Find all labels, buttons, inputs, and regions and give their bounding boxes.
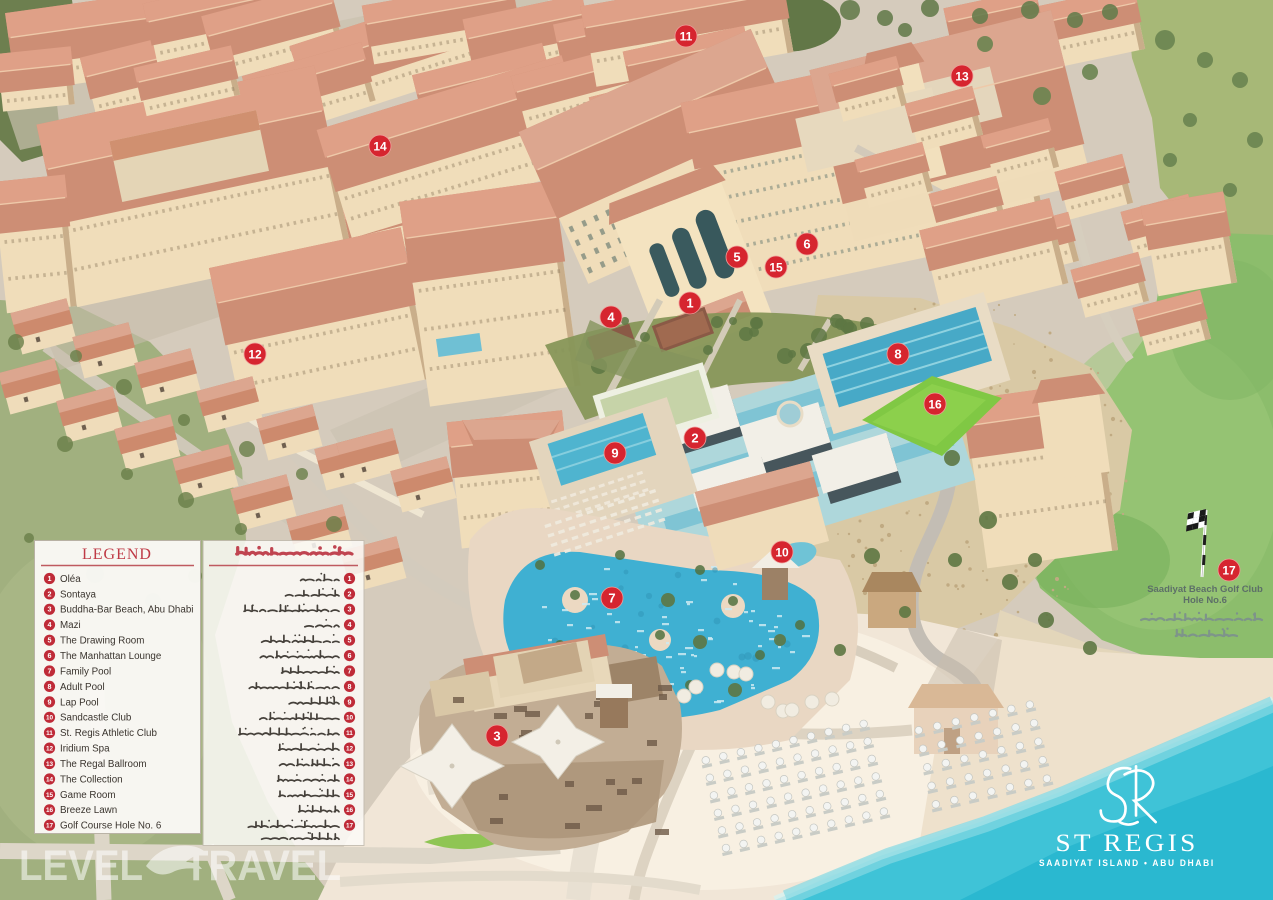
svg-text:11: 11 [46,730,53,737]
svg-text:5: 5 [733,250,740,265]
svg-text:The Collection: The Collection [60,774,123,785]
svg-text:14: 14 [346,776,354,783]
svg-text:7: 7 [48,666,52,675]
svg-text:4: 4 [48,620,52,629]
svg-text:Buddha-Bar Beach, Abu Dhabi: Buddha-Bar Beach, Abu Dhabi [60,605,193,616]
svg-text:2: 2 [691,431,698,446]
svg-text:St. Regis Athletic Club: St. Regis Athletic Club [60,728,157,739]
svg-text:2: 2 [48,589,52,598]
svg-text:1: 1 [48,574,52,583]
svg-text:8: 8 [894,347,901,362]
svg-text:17: 17 [1222,564,1236,578]
svg-text:ST REGIS: ST REGIS [1056,830,1199,857]
svg-text:Adult Pool: Adult Pool [60,682,105,693]
svg-text:8: 8 [348,682,352,691]
svg-text:5: 5 [348,636,352,645]
svg-text:8: 8 [48,682,52,691]
svg-text:13: 13 [955,70,969,84]
svg-text:TRAVEL: TRAVEL [184,842,341,890]
svg-text:11: 11 [680,30,693,44]
svg-text:Sontaya: Sontaya [60,589,97,600]
svg-text:9: 9 [611,446,618,461]
svg-text:9: 9 [48,697,52,706]
svg-text:16: 16 [346,807,354,814]
svg-text:9: 9 [348,697,352,706]
svg-text:Sandcastle Club: Sandcastle Club [60,713,132,724]
svg-text:Saadiyat Beach Golf Club: Saadiyat Beach Golf Club [1147,584,1263,595]
svg-text:16: 16 [46,807,54,814]
svg-text:Breeze Lawn: Breeze Lawn [60,805,117,816]
svg-text:Mazi: Mazi [60,620,81,631]
svg-text:SAADIYAT ISLAND • ABU DHABI: SAADIYAT ISLAND • ABU DHABI [1039,858,1215,869]
svg-text:10: 10 [346,715,354,722]
svg-text:The Manhattan Lounge: The Manhattan Lounge [60,651,162,662]
svg-text:Oléa: Oléa [60,574,81,585]
svg-text:3: 3 [48,605,52,614]
svg-text:15: 15 [769,261,783,275]
svg-text:LEGEND: LEGEND [82,546,152,563]
svg-text:15: 15 [346,792,354,799]
svg-text:3: 3 [348,605,352,614]
svg-text:17: 17 [346,823,354,830]
svg-text:17: 17 [46,823,54,830]
svg-text:13: 13 [46,761,54,768]
svg-text:The Regal Ballroom: The Regal Ballroom [60,759,147,770]
svg-text:12: 12 [248,348,262,362]
svg-text:10: 10 [46,715,54,722]
svg-text:Golf Course Hole No. 6: Golf Course Hole No. 6 [60,821,162,832]
svg-text:6: 6 [348,651,352,660]
svg-text:11: 11 [346,730,353,737]
svg-text:13: 13 [346,761,354,768]
svg-text:Hole No.6: Hole No.6 [1183,595,1227,606]
svg-text:10: 10 [775,546,789,560]
svg-text:Game Room: Game Room [60,790,116,801]
svg-text:2: 2 [348,589,352,598]
svg-text:Lap Pool: Lap Pool [60,697,99,708]
svg-text:15: 15 [46,792,54,799]
svg-text:7: 7 [348,666,352,675]
svg-text:Iridium Spa: Iridium Spa [60,744,110,755]
svg-text:6: 6 [48,651,52,660]
svg-text:12: 12 [346,746,354,753]
svg-text:16: 16 [928,398,942,412]
svg-text:14: 14 [373,140,387,154]
svg-text:12: 12 [46,746,54,753]
svg-text:6: 6 [803,237,810,252]
svg-text:14: 14 [46,776,54,783]
svg-text:4: 4 [607,310,615,325]
svg-text:LEVEL: LEVEL [19,842,143,890]
svg-text:The Drawing Room: The Drawing Room [60,636,144,647]
svg-text:1: 1 [348,574,352,583]
svg-text:3: 3 [493,729,500,744]
svg-text:Family Pool: Family Pool [60,666,111,677]
svg-text:1: 1 [686,296,693,311]
svg-text:4: 4 [348,620,352,629]
svg-text:7: 7 [608,591,615,606]
svg-text:5: 5 [48,636,52,645]
